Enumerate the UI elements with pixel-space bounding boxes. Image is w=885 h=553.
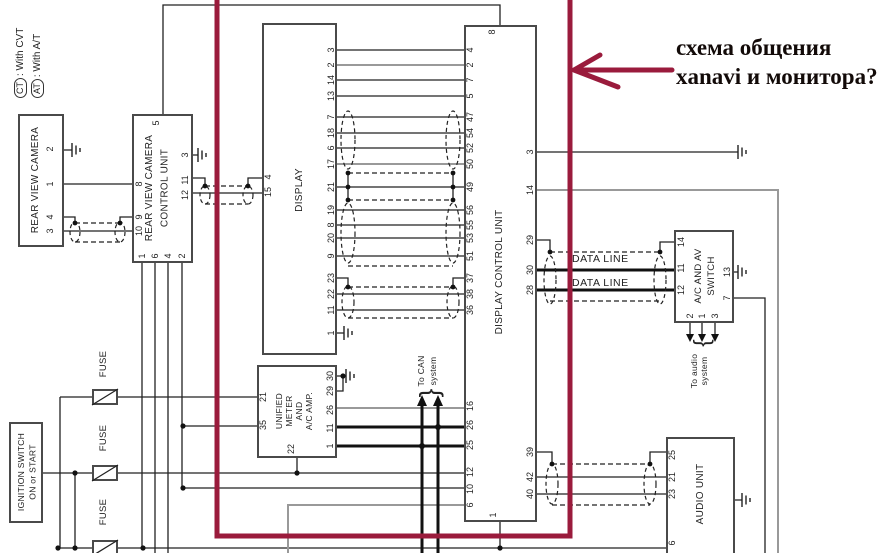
- annotation-highlight-box: [217, 0, 570, 536]
- annotation-text-line2: xanavi и монитора?: [676, 62, 878, 91]
- annotation-text: схема общения xanavi и монитора?: [676, 33, 878, 91]
- wiring-diagram-page: CT: With CVT AT: With A/T REAR VIEW CAME…: [0, 0, 885, 553]
- annotation-text-line1: схема общения: [676, 33, 878, 62]
- annotation-arrow: [574, 55, 672, 87]
